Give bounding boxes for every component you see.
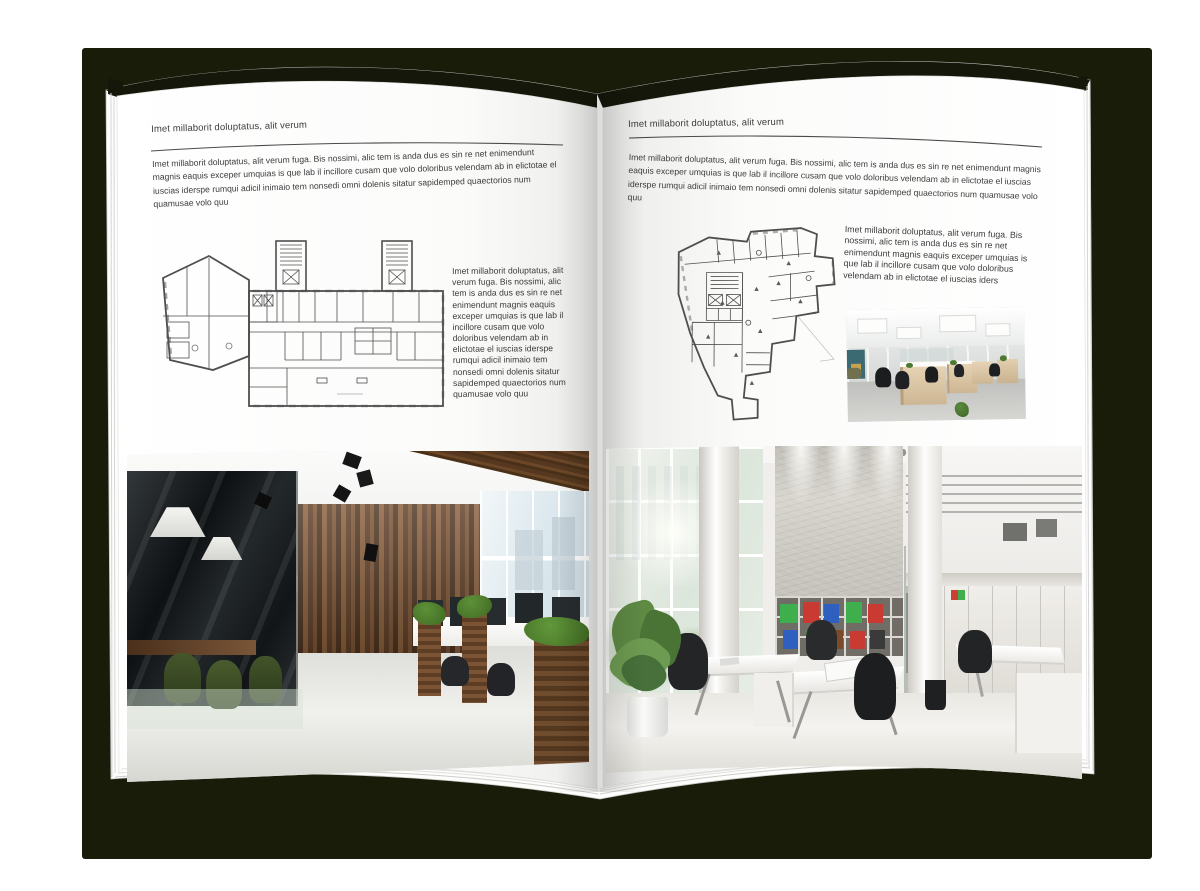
wood-planter: [534, 636, 589, 782]
glass-reflection: [127, 689, 303, 729]
wall-washer-light: [868, 446, 906, 506]
brochure-mockup-canvas: Imet millaborit doluptatus, alit verum I…: [0, 0, 1200, 891]
binders-green: [780, 604, 798, 623]
bookshelf: [775, 596, 904, 656]
right-page-side-text: Imet millaborit doluptatus, alit verum f…: [843, 224, 1033, 288]
round-column: [908, 446, 941, 700]
first-aid-sign: [951, 590, 958, 600]
waste-bin: [925, 680, 946, 710]
wall-washer-light: [782, 446, 820, 506]
vent-grille: [1036, 519, 1057, 536]
binders-red: [850, 631, 865, 649]
binders-dark: [870, 630, 885, 649]
office-chair: [989, 363, 1000, 377]
office-photo-left: [127, 451, 589, 782]
binders-blue: [783, 630, 798, 649]
light-panel: [896, 327, 921, 340]
plant-grass: [413, 602, 445, 625]
office-chair: [925, 367, 938, 383]
plant-pot: [627, 697, 667, 737]
office-chair: [895, 370, 910, 388]
floorplan-right: [648, 222, 841, 423]
city-view: [515, 530, 543, 590]
light-panel: [857, 318, 888, 334]
office-chair: [954, 364, 965, 378]
right-header-rule: [628, 133, 1043, 151]
wood-planter: [418, 617, 441, 696]
wall-washer-light: [825, 446, 863, 506]
light-panel: [939, 314, 977, 332]
meeting-table: [127, 640, 256, 655]
small-plant: [954, 402, 968, 417]
binders-green: [846, 602, 863, 622]
office-chair: [441, 656, 469, 686]
wood-planter: [462, 610, 487, 703]
office-chair: [806, 620, 837, 660]
office-chair: [487, 663, 515, 696]
office-photo-small: [846, 307, 1026, 422]
desk-pedestal: [1015, 673, 1082, 753]
left-page-side-text: Imet millaborit doluptatus, alit verum f…: [452, 265, 566, 400]
office-chair: [958, 630, 991, 673]
exit-sign: [958, 590, 965, 600]
floorplan-left: [157, 228, 447, 415]
city-view: [552, 517, 575, 590]
office-photo-right: [606, 446, 1082, 780]
small-plant: [1000, 355, 1007, 361]
office-chair: [854, 653, 897, 720]
lounge-seat: [847, 368, 861, 379]
office-chair: [875, 367, 891, 387]
vent-grille: [1003, 523, 1028, 540]
binders-red: [868, 604, 883, 623]
light-panel: [985, 323, 1010, 337]
